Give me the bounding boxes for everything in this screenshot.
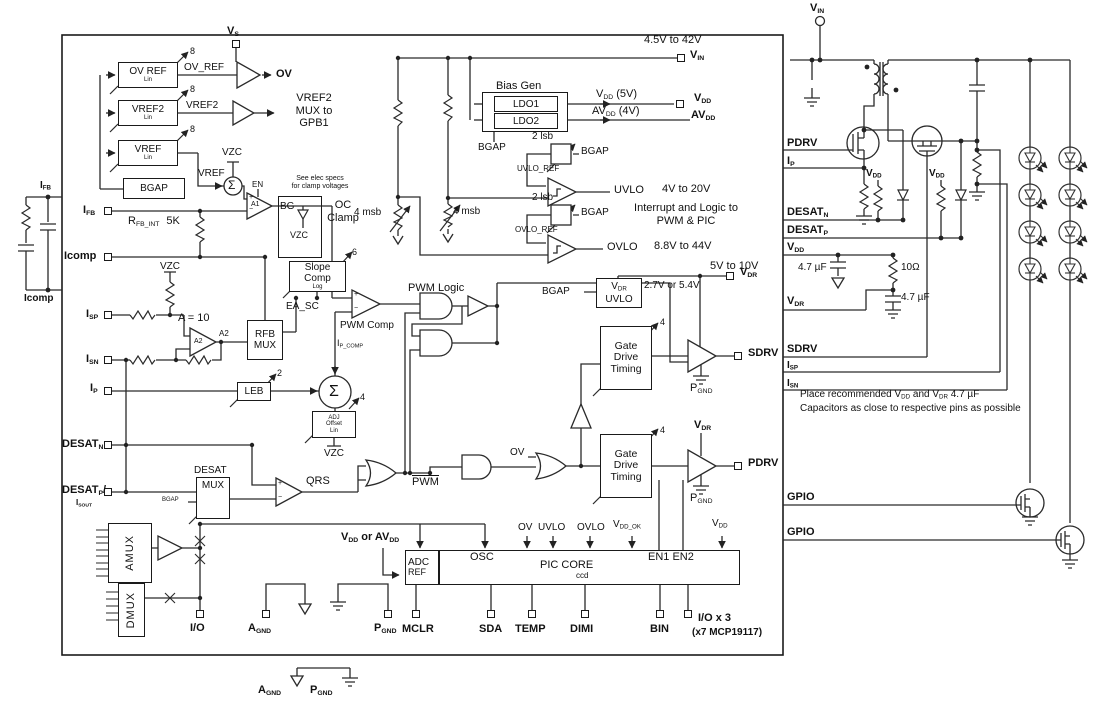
pin-label-dimi: DIMI xyxy=(570,623,593,636)
label-pdrv-ext: PDRV xyxy=(787,137,817,150)
block-rfb-mux: RFBMUX xyxy=(247,320,283,360)
pin-label-pgnd: PGND xyxy=(374,622,396,636)
label-vdd-pullup: VDD xyxy=(866,168,882,180)
label-vzc: VZC xyxy=(160,261,180,273)
label-vzc: VZC xyxy=(324,448,344,460)
label-en: EN xyxy=(252,180,263,189)
label-bgap: BGAP xyxy=(581,207,609,219)
bus8-label: 8 xyxy=(190,84,195,94)
block-ov-ref: OV REFLin xyxy=(118,62,178,88)
label-2lsb: 2 lsb xyxy=(532,131,553,143)
pin-desatn xyxy=(104,441,112,449)
pin-label-isp: ISP xyxy=(86,308,98,322)
label-pwm-logic: PWM Logic xyxy=(408,282,464,295)
label-ov-output: OV xyxy=(276,68,292,81)
bus4-label: 4 xyxy=(660,425,665,435)
pin-icomp xyxy=(104,253,112,261)
block-vref2: VREF2Lin xyxy=(118,100,178,126)
label-x7-mcp19117: (x7 MCP19117) xyxy=(692,627,762,639)
pin-pdrv xyxy=(734,462,742,470)
label-vzc: VZC xyxy=(222,147,242,159)
label-range-vin: 4.5V to 42V xyxy=(644,34,702,47)
pin-label-isn: ISN xyxy=(86,353,99,367)
minus-mark: − xyxy=(278,494,282,502)
led-strings xyxy=(1019,147,1087,283)
label-ovlo-signal: OVLO xyxy=(607,241,638,254)
pin-label-ifb: IFB xyxy=(83,204,95,218)
label-bgap: BGAP xyxy=(581,146,609,158)
label-vref2-mux-gpb1: VREF2MUX toGPB1 xyxy=(282,92,346,130)
label-desat: DESAT xyxy=(194,465,227,477)
pin-vin xyxy=(677,54,685,62)
block-desat-mux: MUX xyxy=(196,477,230,519)
bus2-label: 2 xyxy=(277,368,282,378)
label-cap-4u7: 4.7 µF xyxy=(798,262,827,274)
label-en1-en2: EN1 EN2 xyxy=(648,551,694,564)
label-ccd: ccd xyxy=(576,571,588,580)
label-vdd-ext: VDD xyxy=(787,241,804,255)
block-bgap: BGAP xyxy=(123,178,185,199)
pin-label-io: I/O xyxy=(190,622,205,635)
label-vdr-rail: VDR xyxy=(694,419,711,433)
pin-label-bin: BIN xyxy=(650,623,669,636)
label-a2-amp: A2 xyxy=(194,338,203,346)
label-rfb-int: RFB_INT5K xyxy=(128,215,180,229)
label-pic-core: PIC CORE xyxy=(540,559,593,572)
block-leb: LEB xyxy=(237,382,271,401)
label-ip-comp: IP_COMP xyxy=(337,338,363,350)
bus8-label: 8 xyxy=(190,124,195,134)
minus-mark: − xyxy=(249,206,253,214)
label-ovlo-ref: OVLO_REF xyxy=(515,225,558,234)
block-gate-drive-timing-2: GateDriveTiming xyxy=(600,434,652,498)
label-pwm-comp: PWM Comp xyxy=(340,320,394,332)
label-gpio2: GPIO xyxy=(787,526,815,539)
label-bgap: BGAP xyxy=(478,142,506,154)
label-sdrv-ext: SDRV xyxy=(787,343,817,356)
pin-vdd xyxy=(676,100,684,108)
label-uvlo-to-pic: UVLO xyxy=(538,522,565,534)
block-slope-comp: SlopeCompLog xyxy=(289,261,346,292)
plus-mark: + xyxy=(354,291,358,299)
label-ovlo-to-pic: OVLO xyxy=(577,522,605,534)
label-osc: OSC xyxy=(470,551,494,564)
pin-temp xyxy=(528,610,536,618)
pin-label-vdd: VDD xyxy=(694,92,711,106)
pin-mclr xyxy=(412,610,420,618)
label-gpio1: GPIO xyxy=(787,491,815,504)
pin-ifb xyxy=(104,207,112,215)
label-vref-signal: VREF xyxy=(198,168,225,180)
block-diagram-mcp19117: OV REFLin VREF2Lin VREFLin BGAP SlopeCom… xyxy=(0,0,1100,712)
sigma-symbol: Σ xyxy=(228,179,235,193)
block-ldo2: LDO2 xyxy=(494,113,558,129)
label-pgnd: PGND xyxy=(690,492,712,506)
label-uvlo-ref: UVLO_REF xyxy=(517,164,559,173)
pin-isp xyxy=(104,311,112,319)
pin-pgnd xyxy=(384,610,392,618)
block-adj-offset: ADJOffsetLin xyxy=(312,411,356,438)
label-vdd-pullup: VDD xyxy=(929,168,945,180)
label-bgap: BGAP xyxy=(542,286,570,298)
vin-terminal xyxy=(816,17,825,26)
label-bgap-small: BGAP xyxy=(162,497,179,504)
minus-mark: − xyxy=(354,305,358,313)
bus4-label: 4 xyxy=(660,317,665,327)
block-ldo1: LDO1 xyxy=(494,96,558,112)
pin-label-mclr: MCLR xyxy=(402,623,434,636)
legend-agnd: AGND xyxy=(258,684,281,698)
block-gate-drive-timing-1: GateDriveTiming xyxy=(600,326,652,390)
label-see-elec-specs: See elec specsfor clamp voltages xyxy=(283,175,357,191)
label-a2-signal: A2 xyxy=(219,329,229,338)
pin-label-desatp: DESATP/ xyxy=(62,484,106,498)
label-isp-ext: ISP xyxy=(787,360,798,372)
label-vdd-5v: VDD (5V) xyxy=(596,88,637,102)
resistor-symbols xyxy=(22,95,981,364)
label-ifb-ext: IFB xyxy=(40,180,51,192)
bus6-label: 6 xyxy=(352,247,357,257)
pin-label-iox3: I/O x 3 xyxy=(698,612,731,625)
label-interrupt-logic: Interrupt and Logic toPWM & PIC xyxy=(606,202,766,227)
pin-sdrv xyxy=(734,352,742,360)
label-vin-ext: VIN xyxy=(810,2,824,16)
pin-vs xyxy=(232,40,240,48)
pin-isn xyxy=(104,356,112,364)
label-avdd-4v: AVDD (4V) xyxy=(592,105,640,119)
bus8-label: 8 xyxy=(190,46,195,56)
pin-ip xyxy=(104,387,112,395)
label-2p7-or-5p4: 2.7V or 5.4V xyxy=(644,280,700,292)
pin-bin xyxy=(656,610,664,618)
label-avdd: AVDD xyxy=(691,109,715,123)
label-4msb: 4 msb xyxy=(354,207,381,219)
block-vdr-uvlo: VDR UVLO xyxy=(596,278,642,308)
label-ov-signal: OV xyxy=(510,447,524,459)
pin-io xyxy=(196,610,204,618)
label-pwm-bar: PWM xyxy=(412,476,439,489)
bus4-label: 4 xyxy=(360,392,365,402)
block-dmux: DMUX xyxy=(118,583,145,637)
label-res-10ohm: 10Ω xyxy=(901,262,920,274)
label-ip-ext: IP xyxy=(787,155,795,169)
pin-sda xyxy=(487,610,495,618)
note-line1: Place recommended VDD and VDR 4.7 µF xyxy=(800,389,979,401)
label-pgnd: PGND xyxy=(690,382,712,396)
label-vref2-signal: VREF2 xyxy=(186,100,218,112)
pin-label-isout: ISOUT xyxy=(76,498,92,509)
label-ov-ref-signal: OV_REF xyxy=(184,62,224,74)
label-qrs: QRS xyxy=(306,475,330,488)
pin-label-pdrv: PDRV xyxy=(748,457,778,470)
bus-width-markers xyxy=(110,52,658,524)
note-line2: Capacitors as close to respective pins a… xyxy=(800,403,1021,415)
pin-agnd xyxy=(262,610,270,618)
label-vs: VS xyxy=(227,25,239,39)
label-icomp-ext: Icomp xyxy=(24,293,53,305)
label-ov-to-pic: OV xyxy=(518,522,532,534)
block-amux: AMUX xyxy=(108,523,152,583)
label-2lsb: 2 lsb xyxy=(532,192,553,204)
pin-label-agnd: AGND xyxy=(248,622,271,636)
label-range-uvlo: 4V to 20V xyxy=(662,183,710,196)
label-cap-4u7: 4.7 µF xyxy=(901,292,930,304)
pin-vdr xyxy=(726,272,734,280)
plus-mark: + xyxy=(249,194,253,202)
label-ea-sc: EA_SC xyxy=(286,301,319,313)
label-4msb: 4 msb xyxy=(453,206,480,218)
label-a-equals-10: A = 10 xyxy=(178,312,210,325)
label-desatp-ext: DESATP xyxy=(787,224,828,238)
legend-pgnd: PGND xyxy=(310,684,332,698)
pin-label-icomp: Icomp xyxy=(64,250,96,263)
pin-label-sda: SDA xyxy=(479,623,502,636)
block-vref: VREFLin xyxy=(118,140,178,166)
pin-dimi xyxy=(581,610,589,618)
label-bg: BG xyxy=(280,201,294,213)
label-vzc: VZC xyxy=(290,230,308,240)
pin-label-sdrv: SDRV xyxy=(748,347,778,360)
label-vdd-to-pic: VDD xyxy=(712,518,728,530)
pin-label-vin: VIN xyxy=(690,49,704,63)
label-range-ovlo: 8.8V to 44V xyxy=(654,240,712,253)
pin-label-temp: TEMP xyxy=(515,623,546,636)
block-adc-ref: ADCREF xyxy=(405,550,439,585)
label-vdr-ext: VDR xyxy=(787,295,804,309)
pin-label-vdr: VDR xyxy=(740,266,757,280)
transformer-icon xyxy=(865,62,899,96)
plus-mark: + xyxy=(278,480,282,488)
label-uvlo-signal: UVLO xyxy=(614,184,644,197)
pin-iox3 xyxy=(684,610,692,618)
pin-label-ip: IP xyxy=(90,382,98,396)
label-vdd-or-avdd: VDD or AVDD xyxy=(341,531,399,545)
label-vdd-ok: VDD_OK xyxy=(613,519,641,531)
label-isn-ext: ISN xyxy=(787,378,798,390)
label-bias-gen: Bias Gen xyxy=(496,80,541,93)
label-desatn-ext: DESATN xyxy=(787,206,828,220)
sigma-symbol: Σ xyxy=(329,383,339,401)
pin-label-desatn: DESATN xyxy=(62,438,103,452)
